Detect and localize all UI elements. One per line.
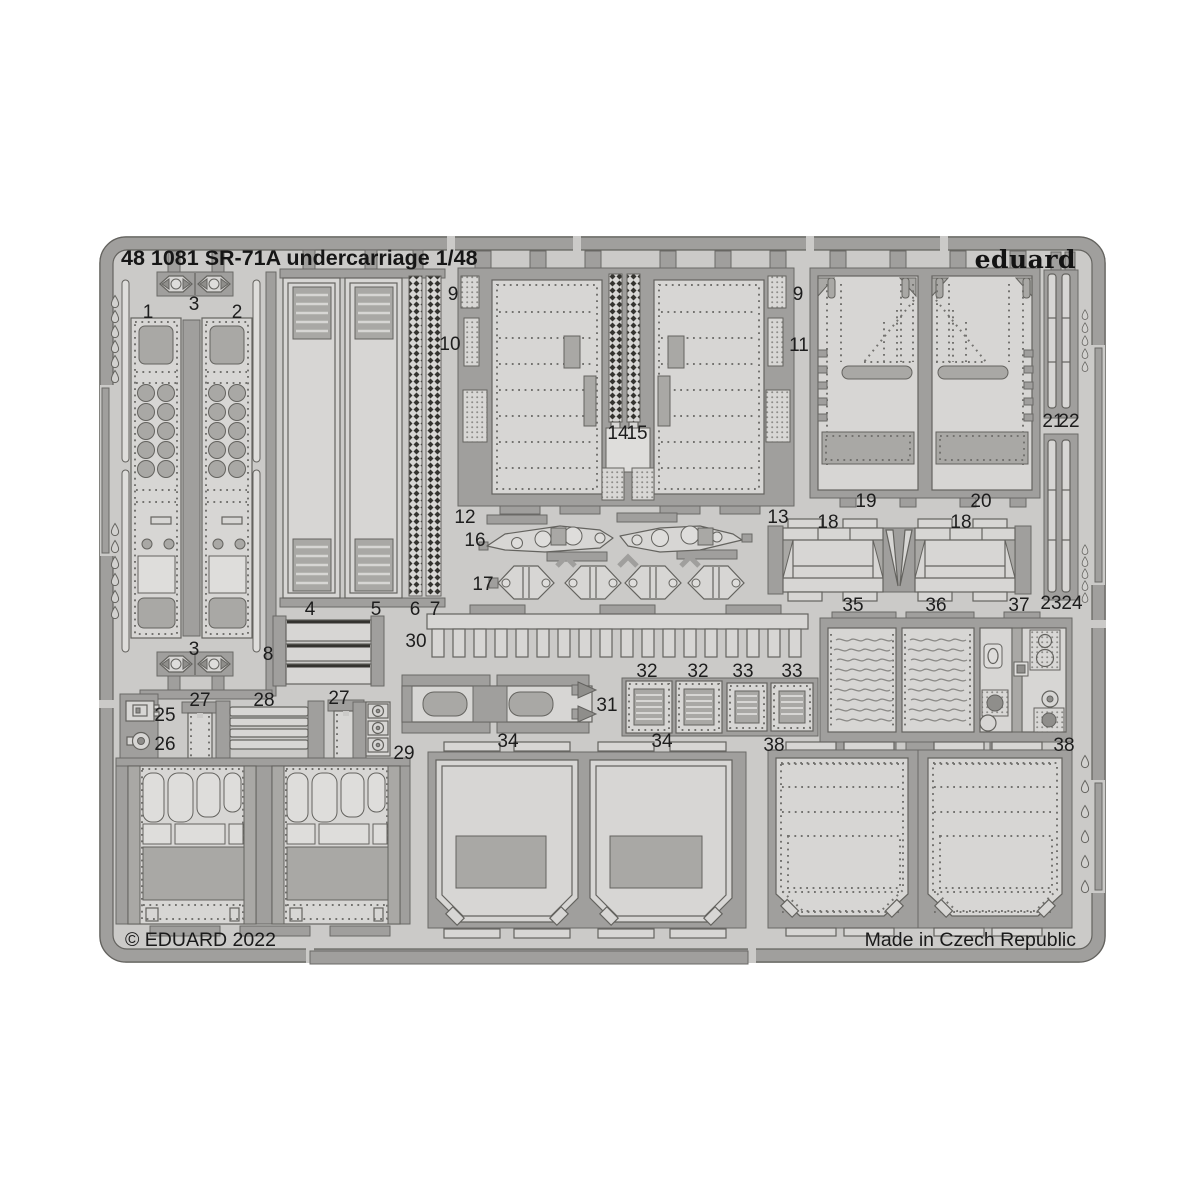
part-label-35: 35 (842, 595, 863, 616)
copyright-text: © EDUARD 2022 (125, 929, 276, 951)
part-label-18: 18 (817, 512, 838, 533)
parts-19-20-doors (810, 251, 1040, 507)
part-label-33: 33 (732, 661, 753, 682)
part-8-assembly (273, 616, 384, 686)
part-label-12: 12 (454, 507, 475, 528)
part-label-31: 31 (596, 695, 617, 716)
part-label-1: 1 (143, 302, 154, 323)
part-label-36: 36 (925, 595, 946, 616)
part-label-8: 8 (263, 644, 274, 665)
part-label-17: 17 (472, 574, 493, 595)
part-label-27: 27 (328, 688, 349, 709)
part-label-15: 15 (626, 423, 647, 444)
parts-32-33-grilles (622, 678, 818, 736)
parts-23-24-strips (1044, 434, 1078, 600)
part-label-29: 29 (393, 743, 414, 764)
part-label-20: 20 (970, 491, 991, 512)
part-label-30: 30 (405, 631, 426, 652)
part-label-19: 19 (855, 491, 876, 512)
part-label-4: 4 (305, 599, 316, 620)
sheet-title: 48 1081 SR-71A undercarriage 1/48 (121, 246, 478, 270)
parts-18-boxes (768, 519, 1031, 601)
part-label-7: 7 (430, 599, 441, 620)
part-label-33: 33 (781, 661, 802, 682)
photoetch-sheet: 48 1081 SR-71A undercarriage 1/48 eduard… (0, 0, 1200, 1200)
part-label-9: 9 (793, 284, 804, 305)
part-label-2: 2 (232, 302, 243, 323)
made-in-text: Made in Czech Republic (865, 929, 1077, 951)
part-label-24: 24 (1061, 593, 1083, 614)
part-31-strip (402, 675, 596, 733)
part-label-3: 3 (189, 639, 200, 660)
part-label-27: 27 (189, 690, 210, 711)
part-label-18: 18 (950, 512, 971, 533)
part-label-10: 10 (439, 334, 460, 355)
gear-doors-12-13-group (458, 251, 794, 514)
part-label-13: 13 (767, 507, 788, 528)
part-label-16: 16 (464, 530, 485, 551)
parts-38-panels (768, 742, 1072, 936)
parts-35-36-37-panel (820, 612, 1072, 750)
part-label-9: 9 (448, 284, 459, 305)
parts-34-doors (428, 742, 746, 938)
part-label-32: 32 (636, 661, 657, 682)
part-label-38: 38 (1053, 735, 1074, 756)
part-label-23: 23 (1040, 593, 1061, 614)
brand-logo: eduard (975, 245, 1076, 274)
part-label-34: 34 (651, 731, 673, 752)
part-label-32: 32 (687, 661, 708, 682)
parts-21-22-strips (1044, 252, 1078, 418)
parts-1-2-panels (122, 272, 276, 696)
part-label-3: 3 (189, 294, 200, 315)
part-label-28: 28 (253, 690, 274, 711)
page-background: 48 1081 SR-71A undercarriage 1/48 eduard… (0, 0, 1200, 1200)
part-label-22: 22 (1058, 411, 1079, 432)
part-label-34: 34 (497, 731, 519, 752)
part-label-25: 25 (154, 705, 175, 726)
part-label-5: 5 (371, 599, 382, 620)
part-label-6: 6 (410, 599, 421, 620)
parts-25-26-group (120, 694, 159, 758)
wheel-bay-panels-left (116, 758, 410, 936)
part-label-11: 11 (789, 335, 809, 356)
part-label-37: 37 (1008, 595, 1029, 616)
part-label-38: 38 (763, 735, 784, 756)
part-label-26: 26 (154, 734, 175, 755)
